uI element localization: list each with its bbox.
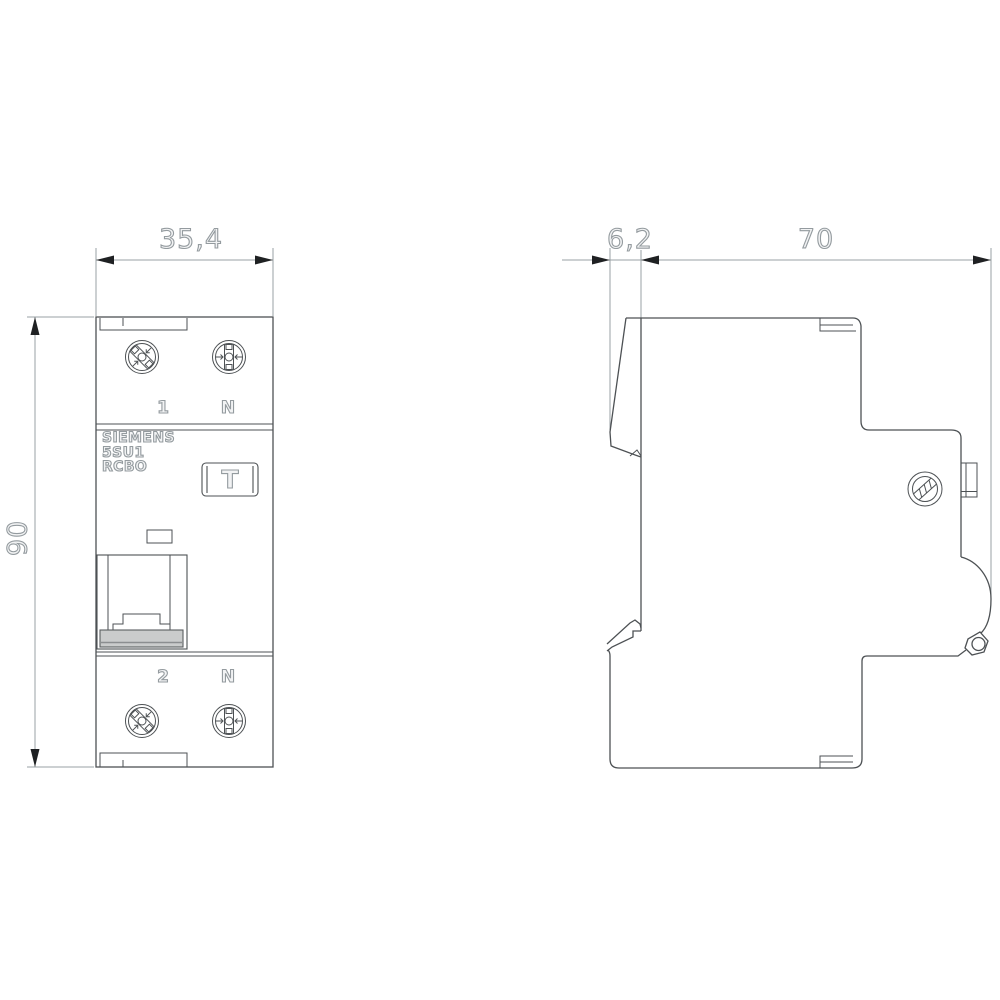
arrow-front-depth-right	[641, 256, 659, 265]
product-type-label: RCBO	[102, 460, 147, 474]
arrow-body-depth-right	[973, 256, 991, 265]
arrow-width-right	[255, 256, 273, 265]
arrow-height-bottom	[31, 749, 40, 767]
terminal-label-2: 2	[157, 669, 169, 686]
front-view-body-outline	[96, 317, 273, 767]
side-clip-pin	[972, 638, 985, 651]
dim-width-extension-lines	[96, 248, 273, 316]
dim-front-depth-label: 6,2	[607, 226, 653, 253]
brand-label: SIEMENS	[102, 431, 175, 445]
side-top-profile	[626, 318, 961, 557]
terminal-label-n-bottom: N	[221, 669, 235, 686]
arrow-height-top	[31, 317, 40, 335]
side-bottom-clip	[820, 756, 853, 768]
terminal-label-1: 1	[157, 400, 169, 417]
side-bottom-profile	[608, 650, 966, 768]
screw-terminal-top-right-icon[interactable]	[213, 341, 246, 374]
arrow-front-depth-left	[592, 256, 610, 265]
side-rear-bulge	[961, 557, 991, 634]
toggle-handle[interactable]	[100, 630, 183, 647]
toggle-switch[interactable]	[97, 555, 187, 649]
drawing-svg	[0, 0, 1000, 1000]
side-din-hook	[607, 620, 641, 651]
side-top-clip	[820, 318, 856, 331]
dim-body-depth-label: 70	[798, 226, 834, 253]
front-view	[96, 317, 273, 767]
terminal-label-n-top: N	[221, 400, 235, 417]
dim-depth-extension-lines	[610, 248, 991, 601]
side-screw-icon[interactable]	[908, 472, 942, 506]
test-button-label: T	[221, 467, 238, 492]
side-view-details	[630, 318, 977, 768]
side-view	[607, 318, 991, 768]
technical-drawing-canvas: 35,4 90 6,2 70 SIEMENS 5SU1 RCBO T 1 N 2…	[0, 0, 1000, 1000]
screw-terminal-bottom-right-icon[interactable]	[213, 705, 246, 738]
dim-height-extension-lines	[27, 317, 94, 767]
model-label: 5SU1	[102, 446, 145, 460]
side-front-slant	[610, 318, 641, 457]
dim-height-label: 90	[5, 520, 32, 556]
dim-width-label: 35,4	[159, 226, 223, 253]
side-terminal-tab-lines	[961, 463, 977, 497]
arrow-width-left	[96, 256, 114, 265]
